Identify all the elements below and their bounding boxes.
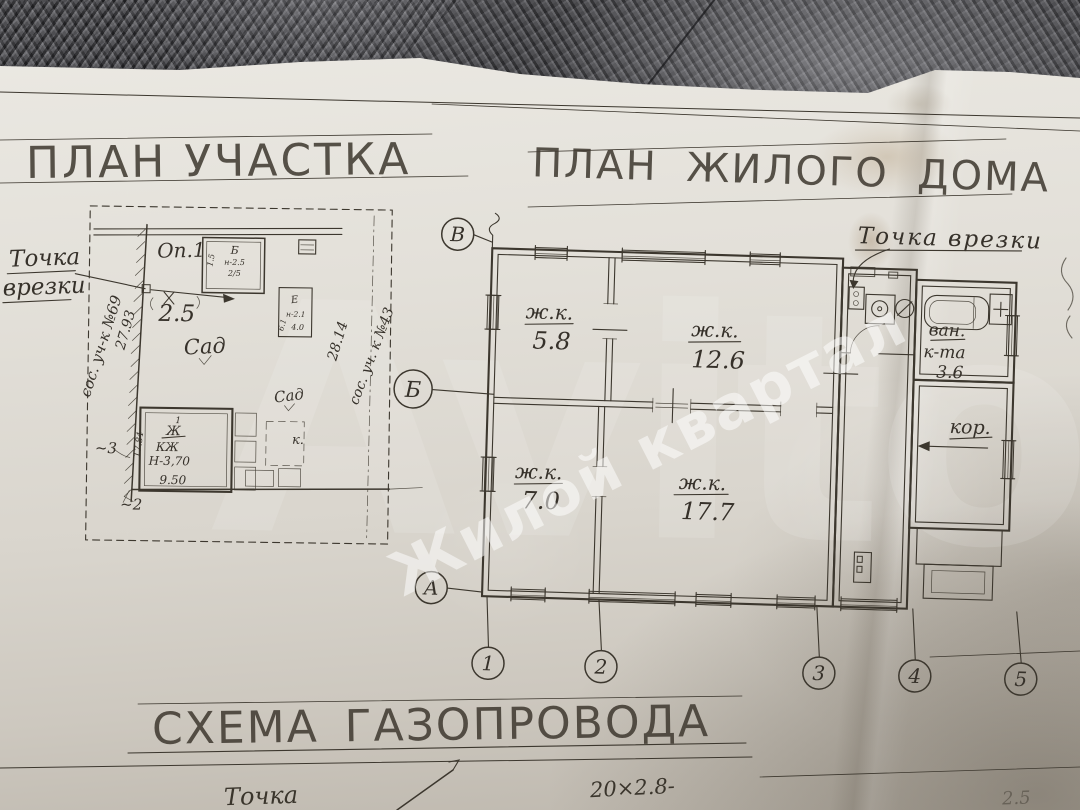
gas-scheme-title: СХЕМА ГАЗОПРОВОДА: [152, 696, 711, 755]
gas-scheme-point-label: Точка: [224, 781, 299, 810]
small-outbuilding: [245, 470, 273, 486]
shed-b-height: н-2.5: [224, 258, 245, 267]
svg-text:ж.к.: ж.к.: [678, 470, 726, 495]
site-plan: Точка врезки Оп.1 2.5 Б н-2.5 2/5 1.5: [0, 205, 426, 545]
svg-text:3: 3: [812, 661, 825, 685]
axis-row-v: В: [441, 218, 493, 251]
room-label-zk1: ж.к. 5.8: [524, 299, 574, 355]
point-3-mark: ~3: [95, 439, 117, 457]
site-tie-in-word1: Точка: [9, 244, 81, 273]
utility-box-symbol: [299, 240, 316, 254]
shed-b-size: 1.5: [205, 253, 216, 267]
svg-text:кор.: кор.: [949, 416, 991, 439]
gas-branch-line: [151, 290, 230, 298]
axis-col-4: 4: [898, 609, 932, 693]
svg-text:2: 2: [593, 654, 607, 678]
street-line: [94, 225, 342, 238]
svg-text:к-та: к-та: [923, 342, 966, 363]
svg-text:ван.: ван.: [928, 320, 965, 341]
shed-e-height: н-2.1: [286, 310, 306, 319]
arrowhead: [917, 441, 929, 451]
svg-text:1: 1: [481, 651, 494, 675]
site-plan-title: ПЛАН УЧАСТКА: [26, 134, 412, 189]
blueprint-drawing: Точка врезки Оп.1 2.5 Б н-2.5 2/5 1.5: [0, 0, 1080, 810]
arrowhead: [223, 294, 235, 303]
house-side-dim: 17.84: [133, 431, 146, 458]
shed-e-size2: 6.1: [276, 318, 288, 332]
corridor-label: кор.: [949, 416, 992, 440]
axis-row-b: Б: [394, 369, 495, 410]
k-building-label: к.: [292, 433, 304, 448]
garden-label: Сад: [183, 333, 226, 359]
shed-e: Е н-2.1 4.0 6.1: [276, 288, 312, 337]
svg-text:3.6: 3.6: [936, 362, 964, 383]
pipe-spec-faint: 2.5: [1002, 788, 1031, 810]
plot-dim-right: 28.14: [324, 319, 351, 363]
shed-b-letter: Б: [230, 244, 239, 257]
plot-bottom-ext: [389, 487, 422, 489]
furnace-symbol: [854, 552, 872, 582]
svg-text:ж.к.: ж.к.: [525, 299, 573, 324]
axis-col-1: 1: [472, 596, 506, 680]
gas-scheme-leader: [397, 760, 459, 810]
tie-in-leader-line: [75, 274, 145, 289]
boiler-symbol: [989, 294, 1012, 325]
corridor-arrow-line: [922, 446, 988, 448]
shed-b: Б н-2.5 2/5 1.5: [202, 237, 265, 293]
svg-text:Б: Б: [404, 378, 422, 403]
svg-text:5: 5: [1014, 667, 1027, 691]
arrowhead: [849, 280, 858, 289]
axis-col-2: 2: [584, 599, 618, 683]
shed-e-size: 4.0: [290, 323, 304, 332]
svg-text:17.7: 17.7: [680, 497, 735, 527]
shed-b-note: 2/5: [227, 269, 241, 278]
axis-col-3: 3: [802, 606, 836, 690]
garden-label2: Сад: [273, 385, 305, 407]
shed-e-letter: Е: [289, 294, 299, 306]
window-symbol: [1001, 315, 1020, 478]
house-width: 9.50: [159, 473, 186, 487]
photo-of-blueprint: Avito: [0, 0, 1080, 810]
support-label: Оп.1: [157, 238, 206, 263]
small-outbuilding: [278, 469, 300, 487]
entrance-steps: [915, 528, 1002, 600]
svg-text:5.8: 5.8: [532, 326, 571, 355]
fence-line: [124, 224, 147, 501]
point-2-mark: ~2: [120, 495, 142, 513]
gas-riser-squiggle: [489, 213, 500, 248]
site-tie-in-word2: врезки: [2, 273, 86, 302]
site-main-house: 1 Ж КЖ Н-3,70 9.50 17.84: [132, 408, 232, 492]
svg-text:ж.к.: ж.к.: [691, 317, 739, 342]
room-label-zk4: ж.к. 17.7: [673, 470, 736, 527]
svg-text:В: В: [449, 222, 465, 246]
pipe-spec-label: 20×2.8-: [589, 774, 675, 802]
offset-dimension: 2.5: [157, 301, 195, 328]
house-height: Н-3,70: [148, 454, 191, 469]
edge-handwriting-squiggle: [1061, 258, 1073, 338]
svg-text:4: 4: [907, 664, 921, 688]
house-type: КЖ: [155, 440, 179, 454]
